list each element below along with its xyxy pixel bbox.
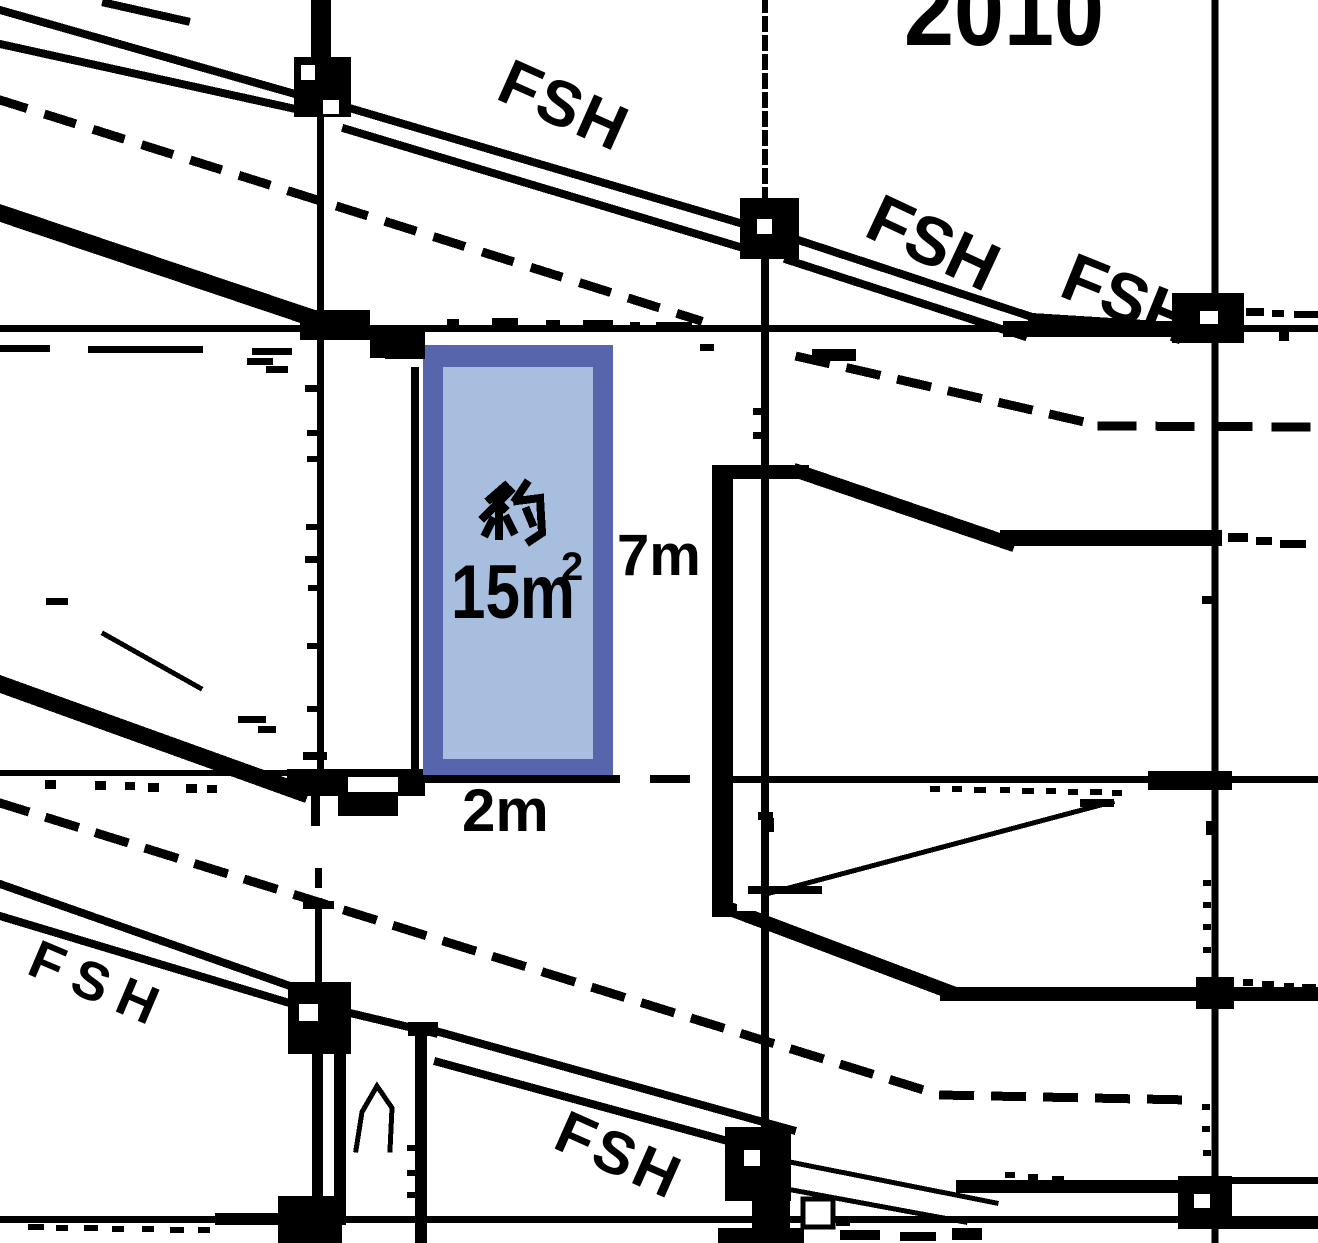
svg-text:7m: 7m (617, 523, 701, 588)
svg-text:2010: 2010 (904, 0, 1104, 67)
svg-text:2m: 2m (462, 777, 549, 844)
svg-text:2: 2 (561, 545, 583, 589)
svg-text:15m: 15m (451, 550, 575, 635)
